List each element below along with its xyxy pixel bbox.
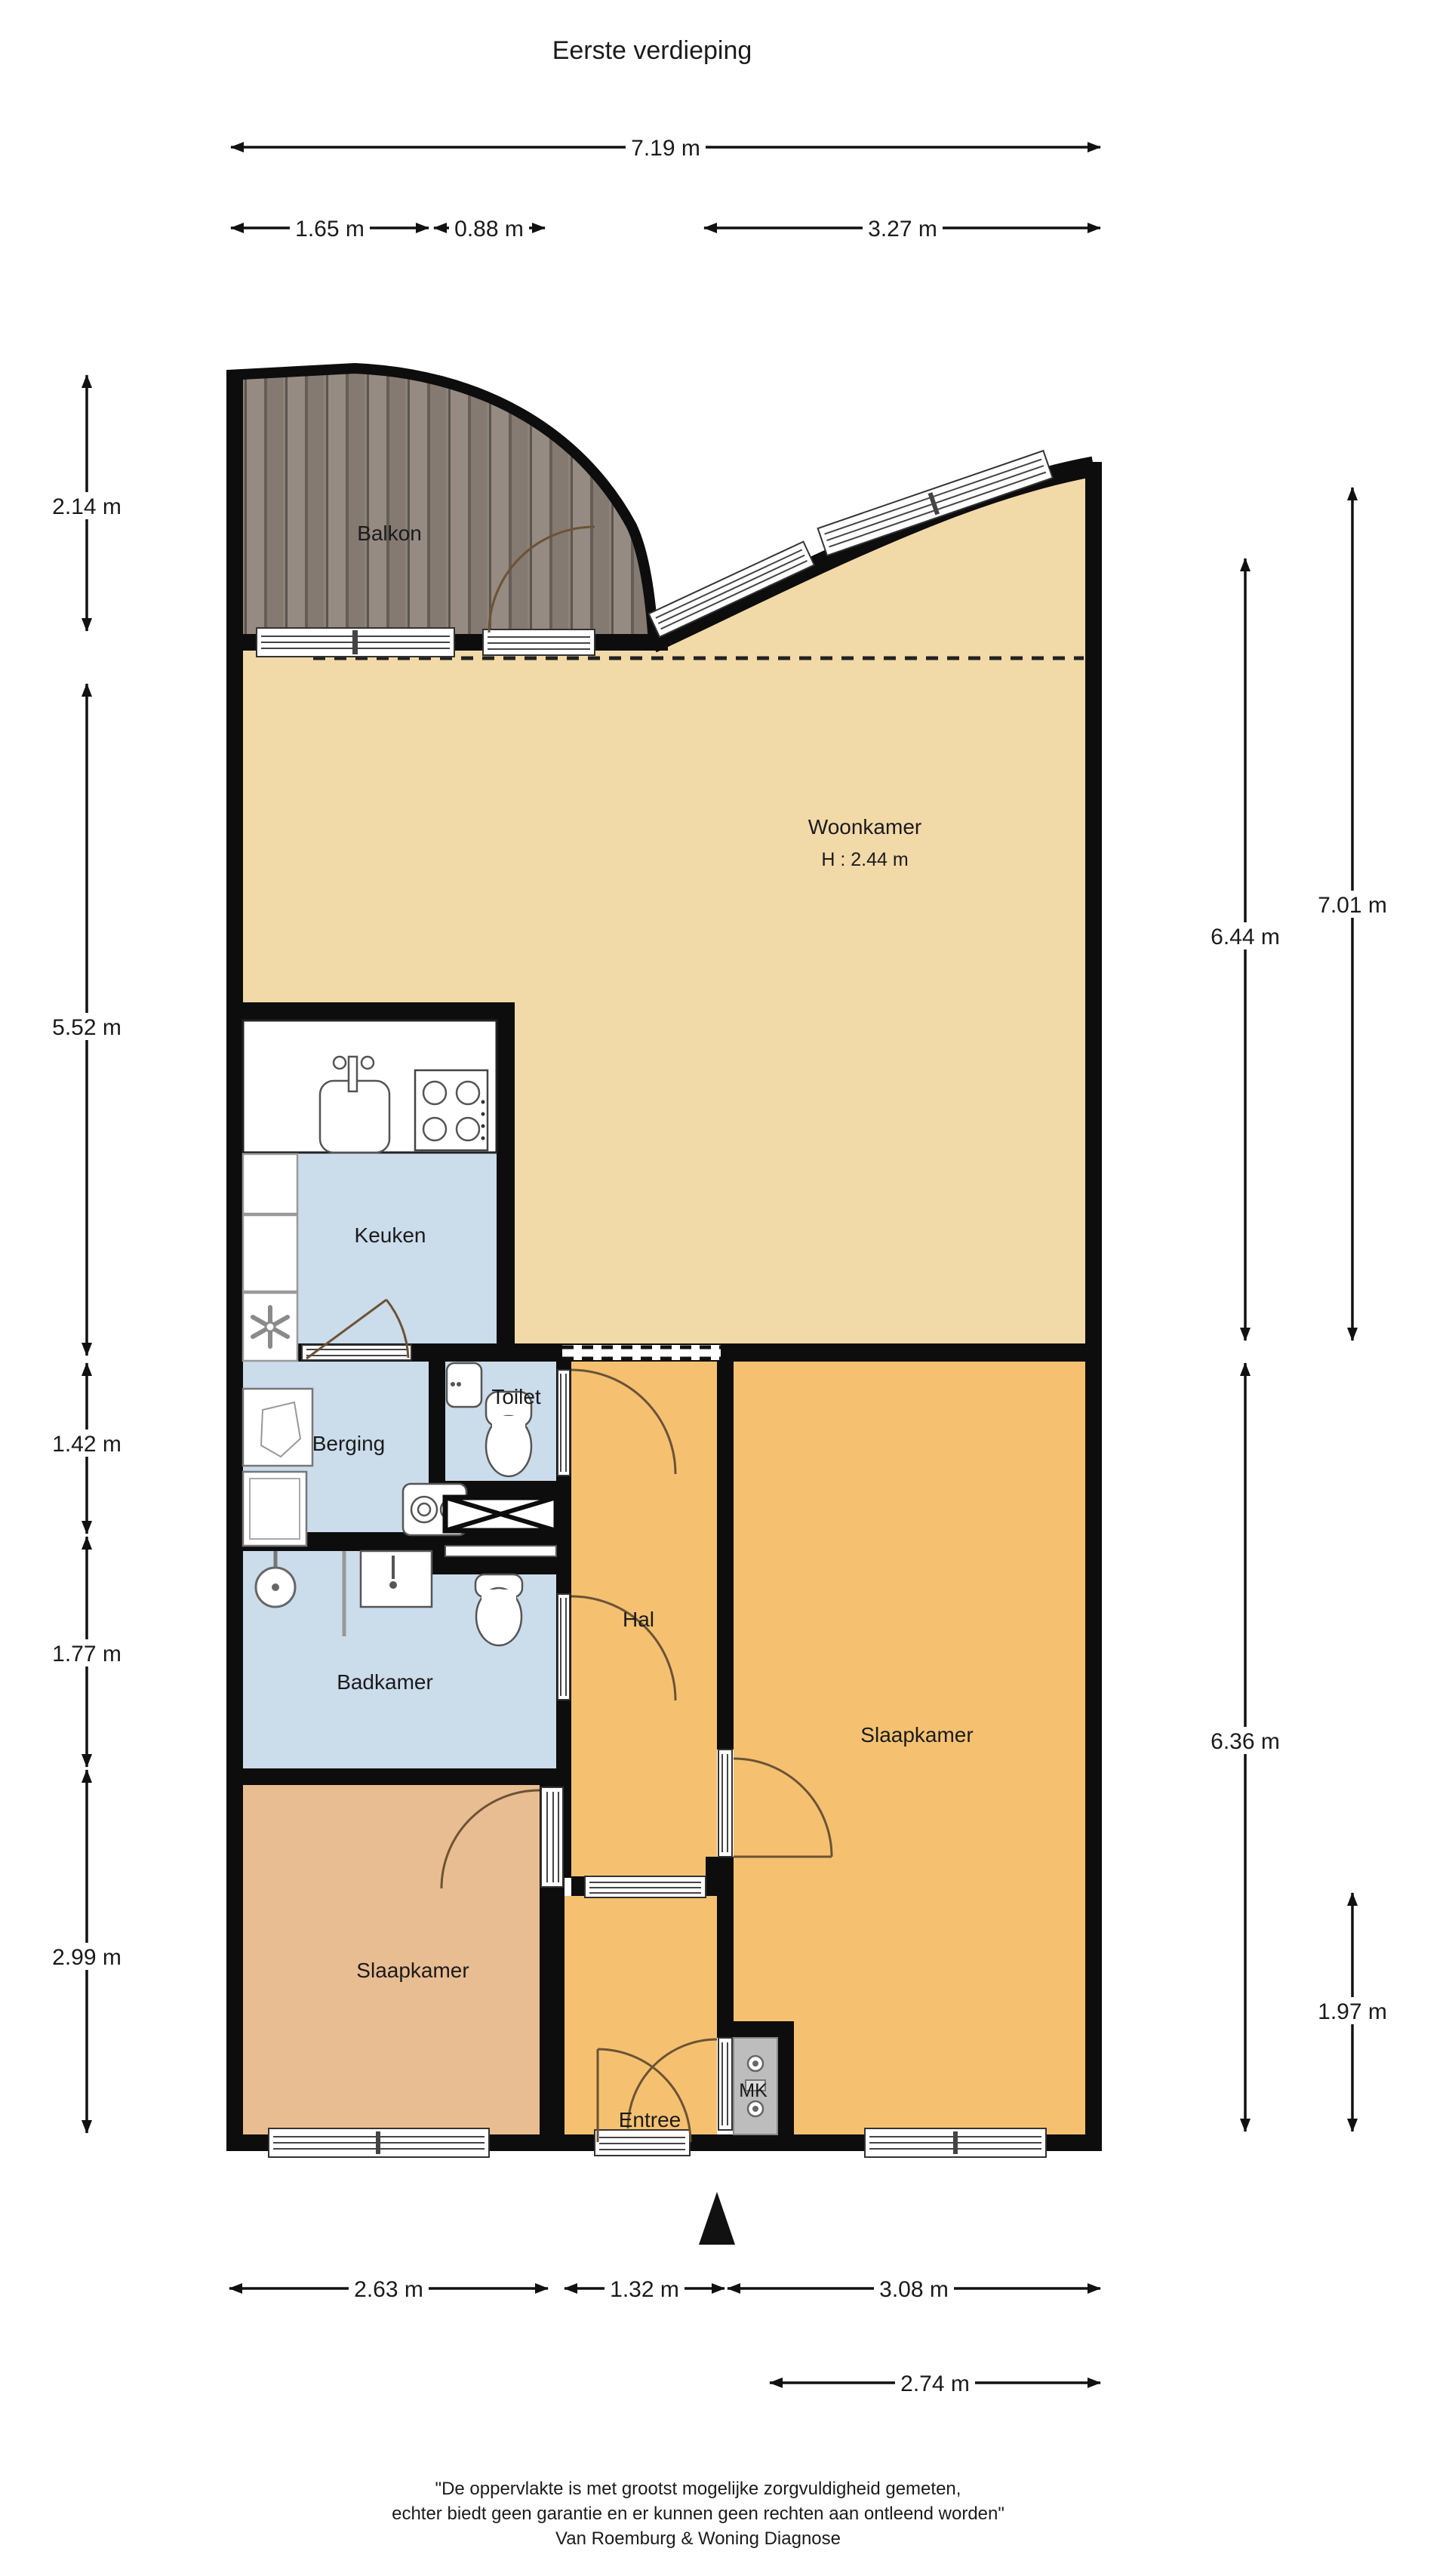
footer-disclaimer-line1: "De oppervlakte is met grootst mogelijke… [435, 2479, 961, 2499]
dim-label: 1.65 m [295, 217, 365, 242]
shaft [445, 1497, 556, 1556]
dimension-top-total: 7.19 m [231, 134, 1100, 161]
floorplan-page: Eerste verdieping [0, 0, 1449, 2576]
wall-entree-slaapkamer [717, 1857, 734, 2021]
dimension-left-woonkamer: 5.52 m [47, 684, 127, 1356]
label-woonkamer: Woonkamer [808, 815, 921, 839]
label-berging: Berging [312, 1432, 386, 1455]
dimension-top-balkon: 1.65 m [231, 214, 429, 242]
dim-label: 2.63 m [354, 2277, 423, 2302]
dim-label: 6.44 m [1211, 925, 1280, 949]
duct-strip [445, 1546, 556, 1556]
label-slaapkamer-right: Slaapkamer [860, 1723, 973, 1747]
bathroom-sink-icon [361, 1551, 432, 1607]
dim-label: 2.99 m [52, 1945, 122, 1970]
footer-disclaimer-line2: echter biedt geen garantie en er kunnen … [392, 2504, 1004, 2524]
dim-label: 0.88 m [454, 217, 524, 242]
dim-label: 1.42 m [52, 1432, 122, 1457]
window-balkon-wall [257, 628, 454, 657]
dimension-left-berging: 1.42 m [47, 1363, 127, 1534]
wall-hal-slaapkamer-upper [717, 1362, 734, 1750]
dim-label: 1.77 m [52, 1642, 122, 1667]
wall-slaapkamer-left-top [226, 1768, 565, 1785]
dimension-bottom-entree: 1.32 m [565, 2275, 724, 2302]
dimension-top-door: 0.88 m [434, 214, 545, 242]
wall-mk-right [777, 2021, 794, 2151]
dimension-top-window: 3.27 m [704, 214, 1100, 242]
dimension-left-badkamer: 1.77 m [47, 1537, 127, 1767]
wall-shaft-bottom [429, 1556, 571, 1574]
kitchen-cabinets [243, 1154, 297, 1361]
dim-label: 3.27 m [868, 217, 937, 242]
dimension-left-balkon: 2.14 m [47, 375, 127, 631]
dim-label: 1.97 m [1318, 1999, 1387, 2024]
dim-label: 7.19 m [631, 136, 700, 161]
label-hal: Hal [623, 1608, 654, 1631]
dimension-bottom-slaapkamer-right-inner: 2.74 m [770, 2369, 1100, 2396]
footer-company: Van Roemburg & Woning Diagnose [555, 2528, 841, 2549]
label-woonkamer-height: H : 2.44 m [821, 849, 908, 870]
dim-label: 2.74 m [900, 2371, 970, 2396]
room-slaapkamer-right-floor [734, 1362, 1085, 2134]
label-balkon: Balkon [357, 522, 422, 545]
opening-hal-woonkamer-dashed [562, 1345, 721, 1360]
dimension-bottom-slaapkamer-right: 3.08 m [728, 2275, 1100, 2302]
wall-hal-bottom-left [571, 1876, 585, 1896]
dim-label: 7.01 m [1318, 893, 1387, 918]
wall-outer-right [1085, 462, 1102, 2151]
dimension-bottom-slaapkamer-left: 2.63 m [229, 2275, 548, 2302]
wall-keuken-right [497, 1002, 515, 1362]
label-entree: Entree [619, 2108, 681, 2131]
room-balkon [228, 368, 654, 643]
balkon-deck [234, 369, 652, 643]
berging-appliance [243, 1472, 306, 1546]
dimension-right-entree: 1.97 m [1312, 1893, 1392, 2131]
bathroom-toilet-icon [475, 1574, 522, 1645]
north-arrow-icon [699, 2192, 735, 2245]
label-toilet: Toilet [491, 1385, 541, 1408]
window-slaapkamer-left [269, 2128, 489, 2157]
label-slaapkamer-left: Slaapkamer [356, 1959, 469, 1982]
window-hal-entree [585, 1876, 706, 1897]
window-slaapkamer-right [865, 2128, 1046, 2157]
dim-label: 2.14 m [52, 494, 122, 519]
label-mk: MK [739, 2080, 768, 2101]
wall-counter-top [243, 1002, 498, 1020]
dimension-right-woonkamer-total: 7.01 m [1312, 488, 1392, 1340]
dim-label: 1.32 m [610, 2277, 679, 2302]
dim-label: 5.52 m [52, 1015, 122, 1040]
dim-label: 6.36 m [1211, 1729, 1280, 1754]
dim-label: 3.08 m [879, 2277, 949, 2302]
label-badkamer: Badkamer [337, 1670, 433, 1694]
dimension-right-slaapkamer: 6.36 m [1205, 1363, 1285, 2131]
page-title: Eerste verdieping [552, 36, 752, 65]
kitchen-hob-icon [415, 1070, 488, 1150]
dimension-left-slaapkamer: 2.99 m [47, 1770, 127, 2133]
dimension-right-woonkamer: 6.44 m [1205, 559, 1285, 1340]
kitchen-counter [243, 1020, 497, 1153]
floorplan-drawing: Eerste verdieping [0, 0, 1449, 2576]
label-keuken: Keuken [355, 1223, 426, 1247]
room-entree-floor [565, 1896, 717, 2134]
